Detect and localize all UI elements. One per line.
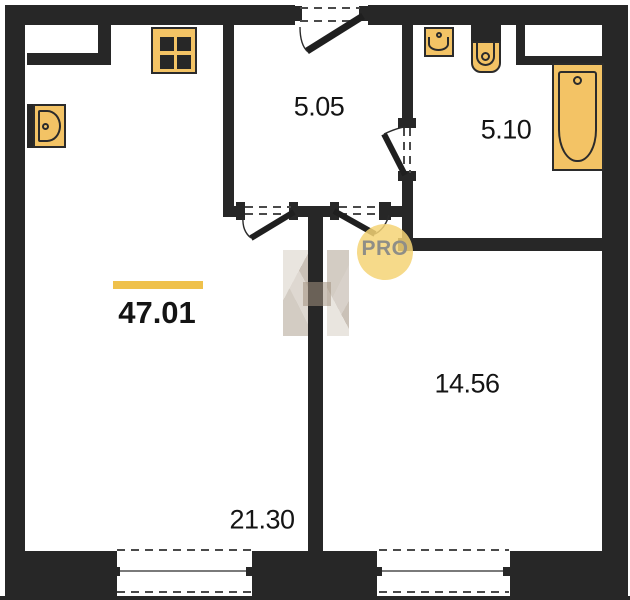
living-room-door-arc [243,217,251,238]
watermark-pro-label: PRO [361,237,408,261]
watermark-logo-center [303,282,331,306]
wall-bottom-block-middle [252,551,377,597]
stove-icon [151,27,197,74]
window-end [503,567,512,576]
wall-middle-vertical [308,206,323,551]
watermark-pro-badge: PRO [357,224,413,280]
window-end [111,567,120,576]
total-area-underline [113,281,203,289]
bathroom-door-leaf [384,134,405,175]
wall-bathroom-left-upper [402,25,413,123]
window-frame-dash [379,549,509,551]
window-end [373,567,382,576]
window-glass-line [381,570,507,572]
window-frame-dash [379,591,509,593]
stove-burner [177,37,191,51]
entrance-door-arc [300,27,308,52]
door-jamb [379,202,391,220]
stove-burner [177,55,191,69]
door-jamb [398,171,416,181]
stove-burner [160,37,174,51]
door-jamb [236,202,245,220]
window-frame-dash [117,591,251,593]
toilet-icon [471,41,501,73]
door-jamb [330,202,339,220]
wall-top-right [368,5,628,25]
room-area-bedroom: 14.56 [434,369,499,400]
door-opening-dash [245,206,291,208]
wall-niche-left-bottom [27,53,111,65]
room-area-bathroom: 5.10 [481,115,532,146]
door-opening-dash [403,128,405,173]
window-glass-line [119,570,249,572]
door-opening-dash [409,128,411,173]
room-area-hallway: 5.05 [294,92,345,123]
wall-bedroom-top [398,238,628,251]
bathroom-sink-basin [428,37,449,51]
total-area-label: 47.01 [118,295,196,331]
bathroom-sink-icon [424,27,454,57]
wall-bottom-block-left [5,551,117,597]
door-jamb [398,118,416,128]
door-jamb [359,6,369,21]
wall-right [602,25,628,597]
door-opening-dash [339,213,381,215]
wall-top-left [5,5,295,25]
wall-hallway-left [223,25,234,217]
kitchen-sink-icon [33,104,66,148]
door-jamb [289,202,298,220]
window-frame-dash [117,549,251,551]
kitchen-sink-drain [42,123,49,130]
entrance-opening-dash [300,20,360,22]
wall-left [5,5,25,597]
door-opening-dash [339,206,381,208]
bathtub-drain [573,76,582,85]
door-opening-dash [245,213,291,215]
window-end [246,567,255,576]
bathroom-sink-drain [436,32,442,38]
bathtub-icon [552,63,604,171]
entrance-opening-dash [300,7,360,9]
stove-burner [160,55,174,69]
wall-bottom-block-right [510,551,628,597]
room-area-living: 21.30 [229,505,294,536]
living-room-door-leaf [251,212,294,238]
toilet-drain [481,52,490,61]
floor-plan: 47.01 5.05 5.10 14.56 21.30 PRO [0,0,630,600]
